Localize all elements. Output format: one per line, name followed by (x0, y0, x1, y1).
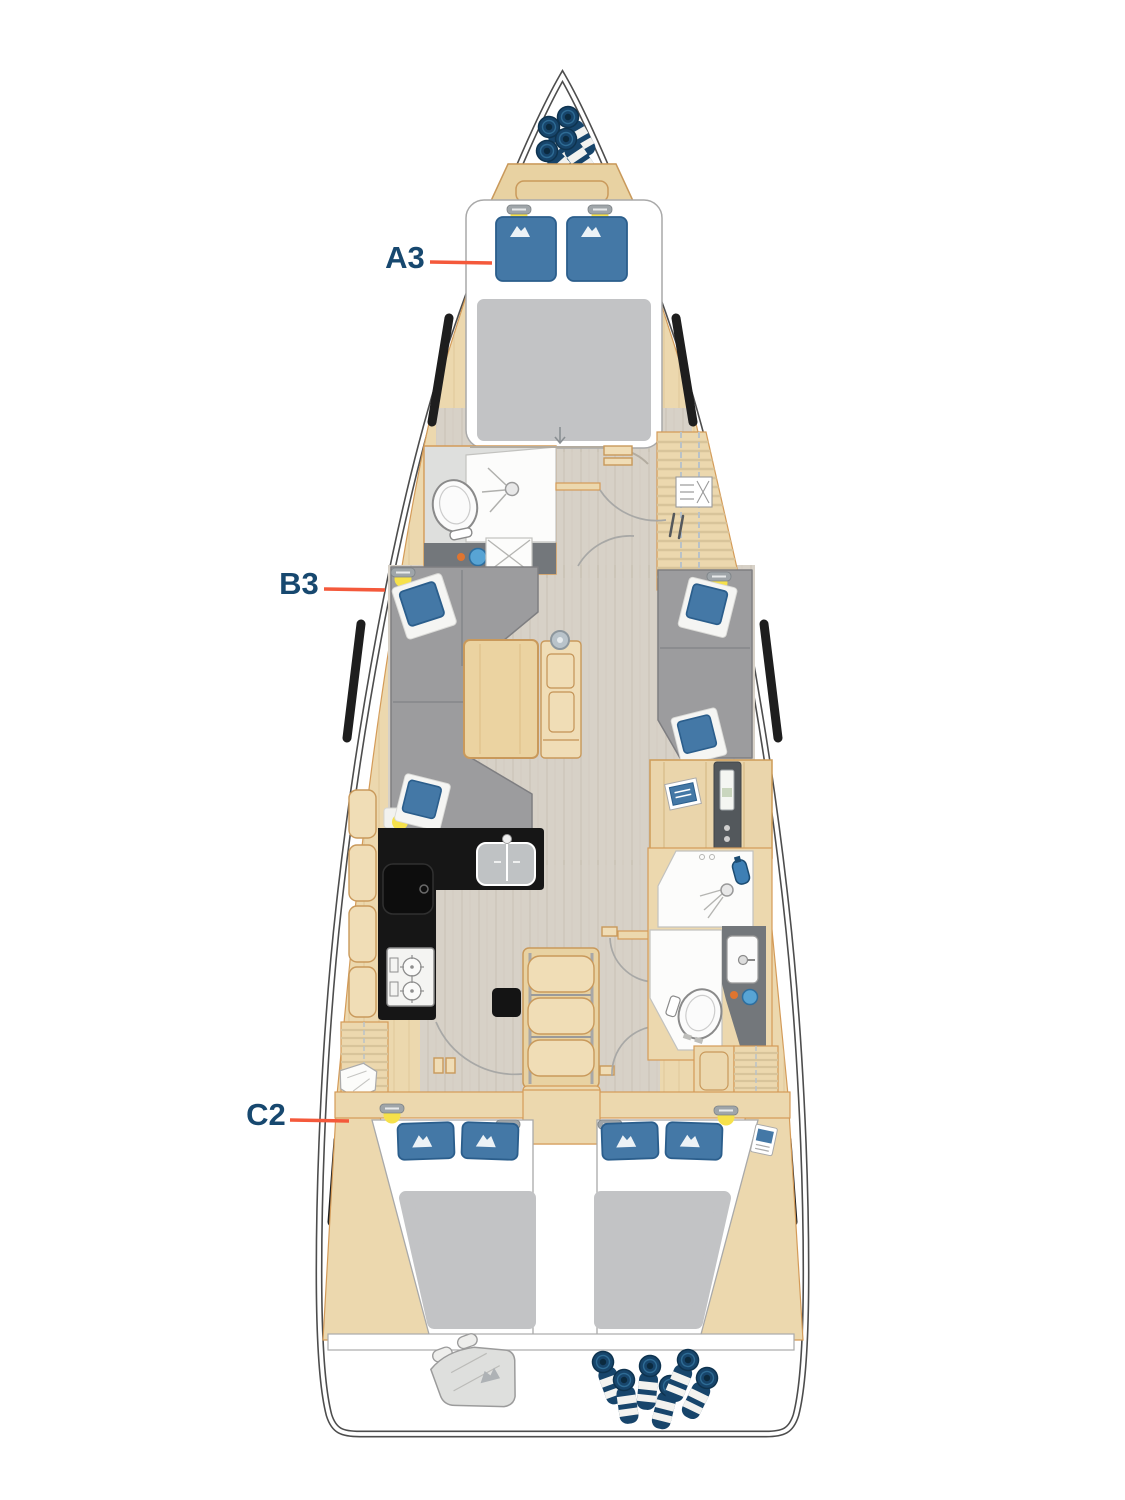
cabin-label-a3: A3 (385, 240, 425, 275)
forward-cabin (466, 103, 662, 448)
pillow (461, 1122, 518, 1160)
pillow (601, 1122, 658, 1160)
floorplan-svg: A3 B3 C2 (0, 0, 1125, 1500)
door-leaf (434, 1058, 443, 1073)
panel-button (724, 836, 730, 842)
sink-icon (727, 936, 758, 983)
fridge-icon (383, 864, 433, 914)
cabin-label-c2: C2 (246, 1097, 286, 1132)
hull-window-stbd-mid (764, 624, 778, 738)
panel-button (724, 825, 730, 831)
stair-tread (528, 998, 594, 1034)
linen-icon (676, 477, 712, 507)
forward-bathroom (424, 446, 556, 574)
door-leaf (604, 458, 632, 465)
mattress-forward (484, 306, 644, 434)
leader-line-c2 (290, 1120, 349, 1121)
stair-tread (528, 956, 594, 992)
hull-window-port-mid (347, 624, 361, 738)
instrument-panel (714, 762, 741, 856)
aft-bathroom (648, 848, 772, 1060)
headboard-panel (490, 164, 634, 203)
door-leaf (446, 1058, 455, 1073)
soap-dispenser-icon (457, 553, 465, 561)
pillow (567, 217, 627, 281)
pillow (496, 217, 556, 281)
sink-basin-icon (743, 990, 758, 1005)
floor-hatch (492, 988, 521, 1017)
yacht-floorplan-canvas: A3 B3 C2 (0, 0, 1125, 1500)
door-leaf (604, 446, 632, 455)
pillow (397, 1122, 454, 1160)
berth-foot-board (328, 1334, 794, 1350)
galley-sink-icon (477, 835, 535, 886)
stair-tread (528, 1040, 594, 1076)
soap-dispenser-icon (730, 991, 738, 999)
door-leaf (602, 927, 617, 936)
cabin-label-b3: B3 (279, 566, 319, 601)
mattress-aft-starboard (601, 1198, 724, 1322)
salon-table (464, 640, 581, 758)
aft-lockers (694, 1046, 778, 1096)
sink-icon (470, 549, 487, 566)
wall-stub (556, 483, 600, 490)
leader-line-a3 (430, 262, 492, 263)
stairs-base-box (523, 1090, 600, 1144)
mast-post-icon (551, 631, 569, 649)
leader-line-b3 (324, 589, 385, 590)
pillow (665, 1122, 722, 1160)
mattress-aft-port (406, 1198, 529, 1322)
nav-station (650, 760, 772, 858)
stove-icon (387, 948, 434, 1006)
wardrobe-locker (655, 432, 748, 590)
